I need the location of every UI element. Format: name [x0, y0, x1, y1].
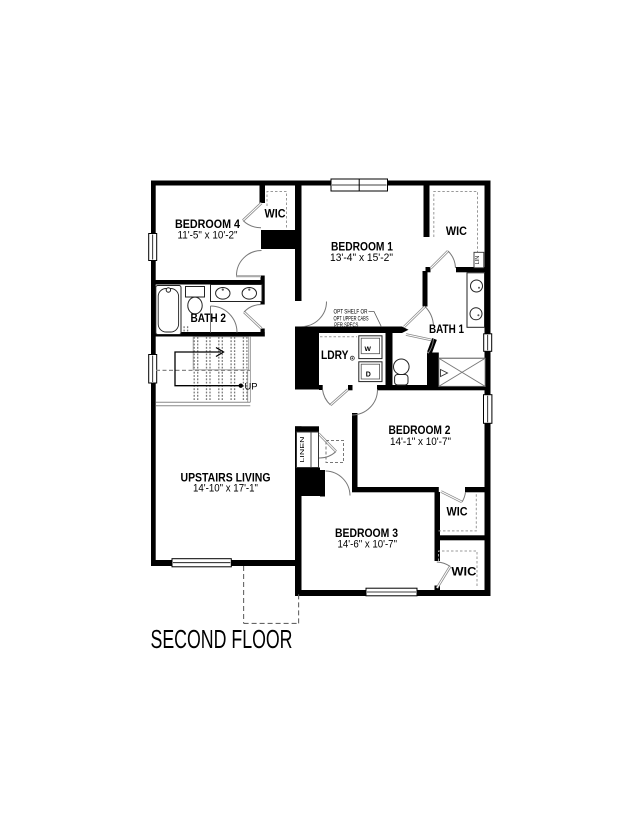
svg-text:WIC: WIC — [447, 507, 468, 519]
svg-text:UP: UP — [245, 382, 258, 392]
svg-text:BATH 2: BATH 2 — [191, 313, 227, 325]
svg-text:LDRY: LDRY — [321, 350, 349, 362]
svg-text:W: W — [365, 346, 372, 353]
svg-text:LINEN: LINEN — [300, 437, 306, 463]
svg-text:D: D — [366, 372, 371, 379]
svg-text:14'-1" x 10'-7": 14'-1" x 10'-7" — [390, 436, 451, 448]
svg-text:11'-5" x 10'-2": 11'-5" x 10'-2" — [178, 230, 238, 242]
svg-text:SECOND FLOOR: SECOND FLOOR — [151, 624, 293, 654]
svg-text:BEDROOM 2: BEDROOM 2 — [389, 423, 451, 437]
svg-text:WIC: WIC — [451, 567, 476, 579]
svg-text:PER SPECS: PER SPECS — [334, 322, 358, 329]
svg-text:BATH 1: BATH 1 — [429, 324, 465, 336]
svg-text:13'-4" x 15'-2": 13'-4" x 15'-2" — [330, 252, 393, 264]
svg-text:WIC: WIC — [265, 209, 286, 221]
svg-text:WIC: WIC — [446, 226, 467, 238]
svg-text:14'-6" x 10'-7": 14'-6" x 10'-7" — [338, 539, 398, 551]
svg-text:LIN: LIN — [475, 256, 481, 265]
svg-text:14'-10" x 17'-1": 14'-10" x 17'-1" — [193, 483, 258, 495]
